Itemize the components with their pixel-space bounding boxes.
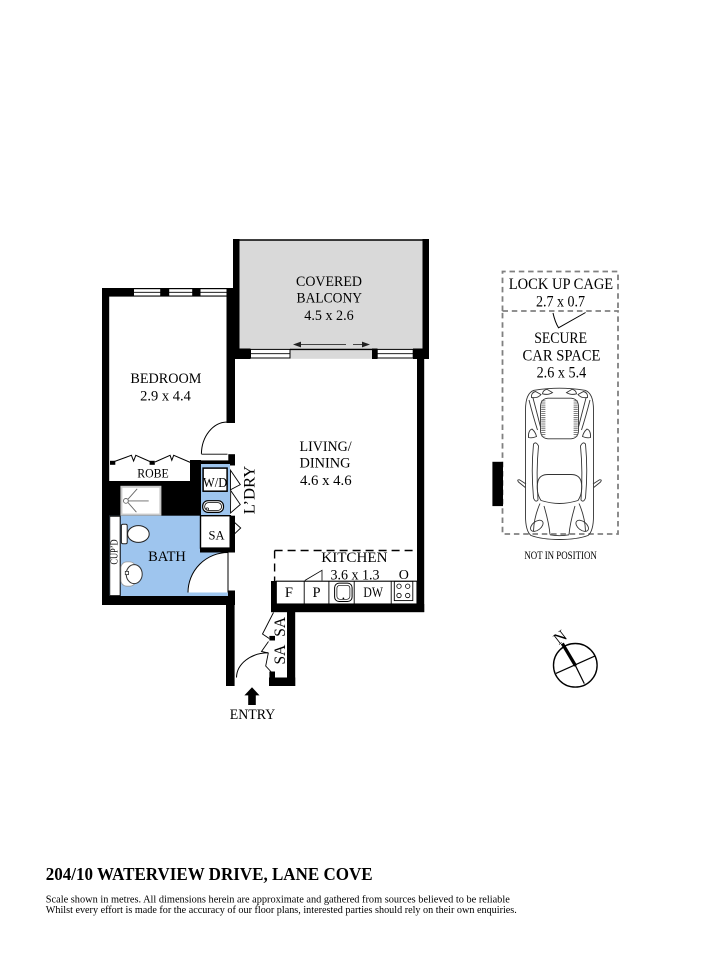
svg-text:CAR SPACE: CAR SPACE — [523, 347, 601, 364]
svg-text:LIVING/: LIVING/ — [300, 439, 353, 455]
svg-text:W/D: W/D — [203, 476, 227, 491]
svg-text:COVERED: COVERED — [296, 274, 362, 290]
svg-text:ENTRY: ENTRY — [230, 707, 276, 723]
svg-text:Whilst every effort is made fo: Whilst every effort is made for the accu… — [46, 904, 517, 916]
svg-text:P: P — [313, 585, 321, 601]
svg-text:NOT IN POSITION: NOT IN POSITION — [524, 548, 597, 562]
svg-text:SA: SA — [272, 616, 289, 637]
svg-text:L’DRY: L’DRY — [242, 465, 259, 514]
svg-text:2.7 x 0.7: 2.7 x 0.7 — [536, 293, 585, 310]
svg-text:SA: SA — [209, 528, 225, 542]
svg-text:204/10 WATERVIEW DRIVE, LANE C: 204/10 WATERVIEW DRIVE, LANE COVE — [46, 864, 373, 884]
svg-text:BALCONY: BALCONY — [297, 291, 363, 307]
svg-text:CUP’D: CUP’D — [109, 539, 120, 564]
svg-text:DINING: DINING — [299, 455, 350, 471]
svg-text:4.6 x 4.6: 4.6 x 4.6 — [300, 473, 352, 489]
svg-text:SA: SA — [272, 644, 289, 665]
svg-text:SECURE: SECURE — [534, 330, 587, 347]
svg-text:2.6 x 5.4: 2.6 x 5.4 — [537, 364, 587, 381]
svg-text:DW: DW — [363, 585, 383, 601]
svg-text:BEDROOM: BEDROOM — [130, 371, 201, 387]
svg-text:F: F — [285, 585, 293, 601]
svg-text:BATH: BATH — [148, 549, 186, 565]
svg-text:KITCHEN: KITCHEN — [321, 550, 387, 566]
svg-text:2.9 x 4.4: 2.9 x 4.4 — [140, 389, 191, 405]
svg-text:4.5 x 2.6: 4.5 x 2.6 — [304, 308, 354, 324]
svg-text:ROBE: ROBE — [137, 467, 169, 481]
svg-text:LOCK UP CAGE: LOCK UP CAGE — [509, 276, 613, 293]
